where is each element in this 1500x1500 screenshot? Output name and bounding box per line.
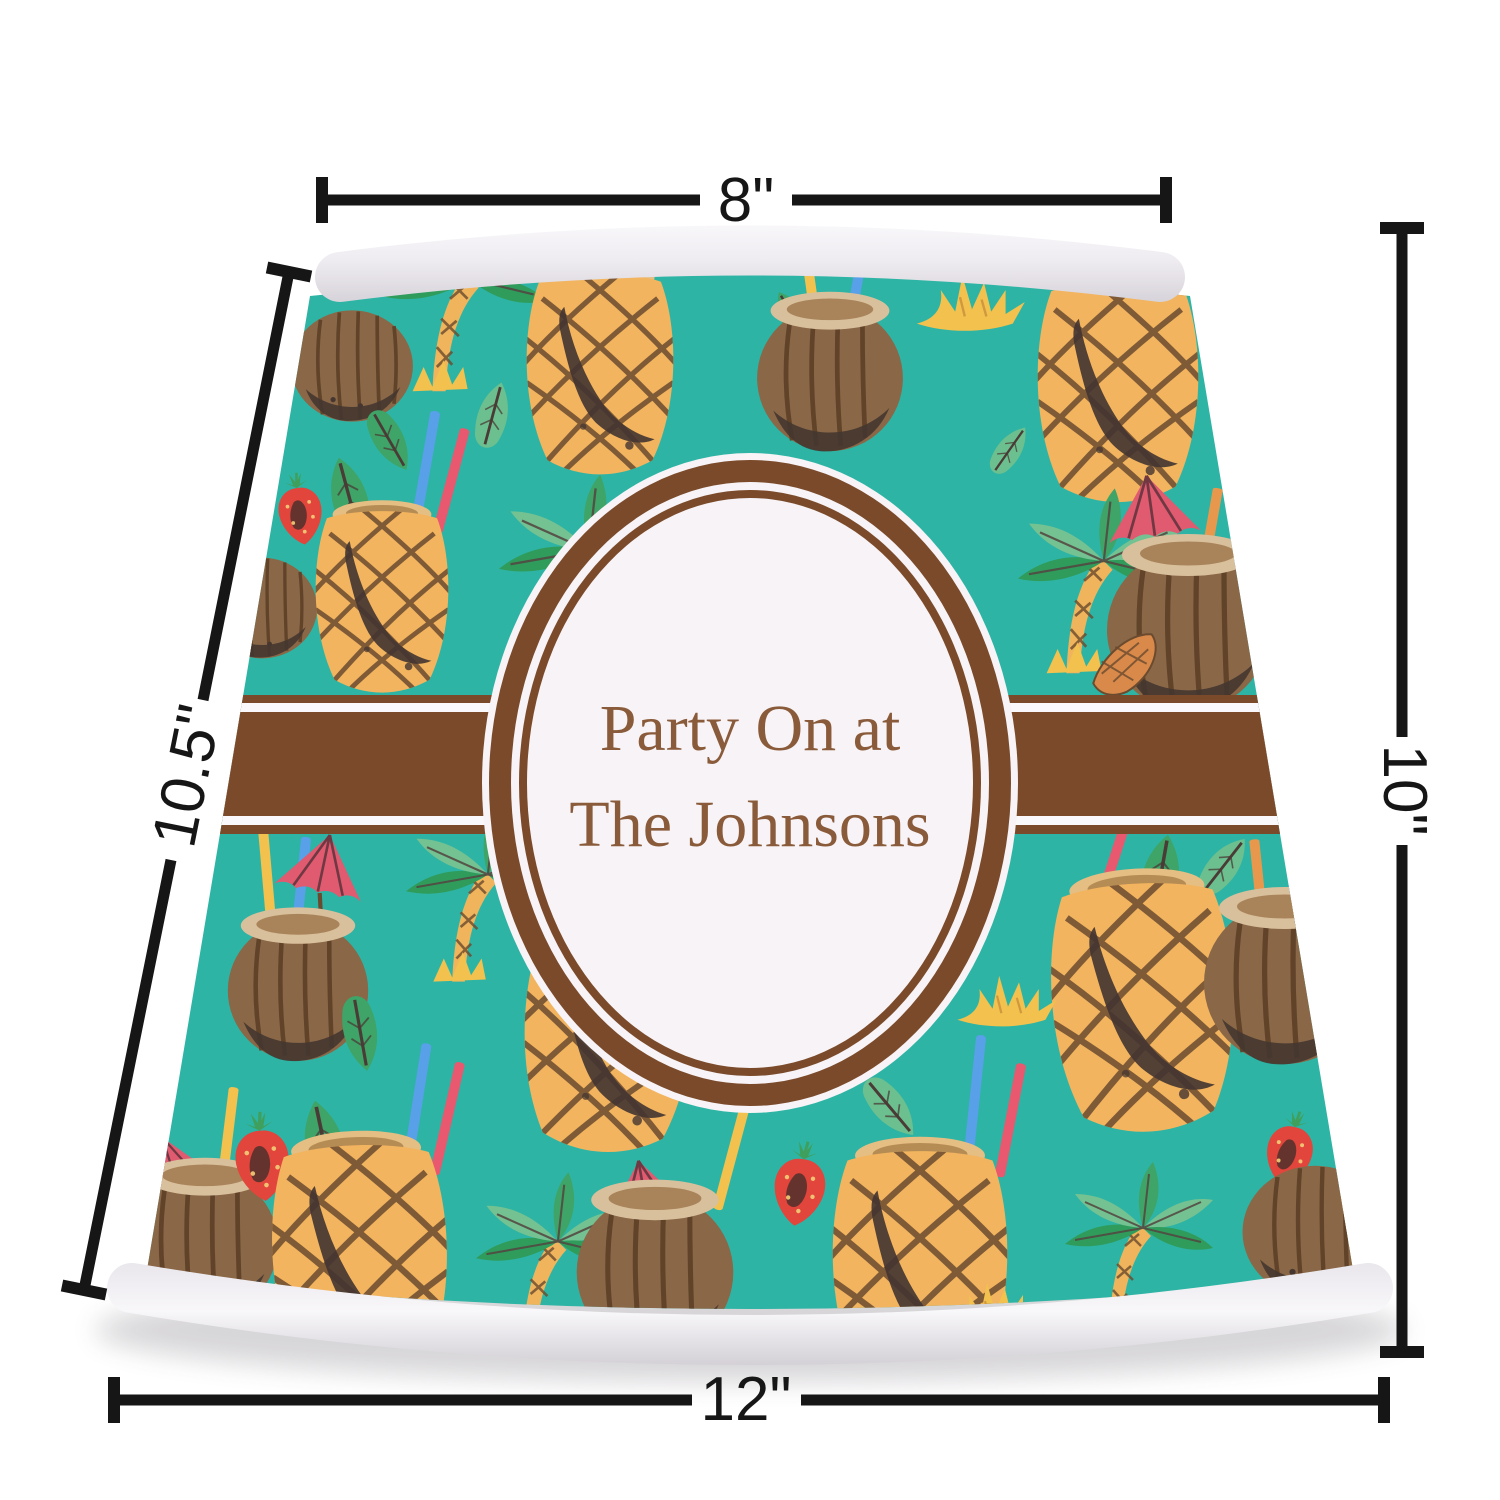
top-trim xyxy=(340,251,1160,278)
product-dimension-diagram: Party On at The Johnsons 8" 10.5" 10" 12… xyxy=(0,0,1500,1500)
dimension-right-height-label: 10" xyxy=(1370,745,1439,836)
dimension-bottom-width-label: 12" xyxy=(701,1365,792,1434)
personalization-text-line2: The Johnsons xyxy=(569,788,930,861)
dimension-top-width-label: 8" xyxy=(718,166,775,235)
lampshade-diagram-svg: Party On at The Johnsons 8" 10.5" 10" 12… xyxy=(0,0,1500,1500)
personalization-oval: Party On at The Johnsons xyxy=(482,453,1018,1113)
personalization-text-line1: Party On at xyxy=(600,692,901,765)
